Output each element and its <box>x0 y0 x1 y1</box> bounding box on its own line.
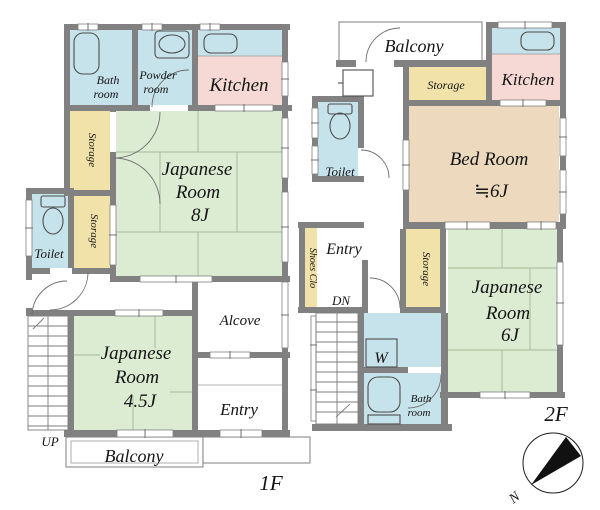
japanese-8j-label-3: 8J <box>191 205 211 226</box>
bedroom-label-1: Bed Room <box>450 149 529 170</box>
storage-top-2f-label: Storage <box>427 78 465 92</box>
bathroom-1f-label-2: room <box>94 87 119 101</box>
stairs-2f <box>316 313 358 424</box>
entry-2f-label: Entry <box>325 241 362 258</box>
shoes-closet-label: Shoes Clo <box>307 248 318 288</box>
kitchen-2f-label: Kitchen <box>501 70 555 89</box>
japanese-45j-label-1: Japanese <box>101 343 172 364</box>
japanese-8j-label-1: Japanese <box>162 159 233 180</box>
compass-north-label: N <box>506 489 524 508</box>
storage-lower-1f-label: Storage <box>88 214 100 248</box>
japanese-6j-label-2: Room <box>485 303 530 324</box>
japanese-6j-label-3: 6J <box>501 325 521 346</box>
toilet-2f-label: Toilet <box>325 164 355 179</box>
balcony-1f-label: Balcony <box>105 446 164 466</box>
floor-plan-svg: Bath room Powder room Kitchen Storage St… <box>0 0 600 510</box>
entry-porch <box>203 437 310 463</box>
toilet-1f-label: Toilet <box>34 246 64 261</box>
stairs-dn-label: DN <box>331 293 351 308</box>
balcony-2f-label: Balcony <box>385 36 444 56</box>
stairs-1f <box>28 316 68 430</box>
storage-side-2f-label: Storage <box>420 252 432 286</box>
bathroom-1f-label-1: Bath <box>97 73 120 87</box>
stairs-up-label: UP <box>41 434 58 449</box>
japanese-45j-label-2: Room <box>114 367 159 388</box>
bathroom-2f-label-2: room <box>408 407 431 419</box>
entry-1f-label: Entry <box>219 400 258 419</box>
alcove-label: Alcove <box>219 313 261 329</box>
japanese-6j-label-1: Japanese <box>472 277 543 298</box>
bedroom-label-2: ≒6J <box>474 181 509 202</box>
floor-tag-1f: 1F <box>259 471 283 495</box>
washing-machine-label: W <box>374 350 389 367</box>
storage-upper-1f-label: Storage <box>86 133 98 167</box>
floor-2f: Balcony Kitchen Storage Bed Room ≒6J Toi… <box>298 21 583 508</box>
powder-room-label-1: Powder <box>138 68 177 82</box>
floor-plan-page: Bath room Powder room Kitchen Storage St… <box>0 0 600 510</box>
compass-icon: N <box>506 433 583 508</box>
floor-tag-2f: 2F <box>544 402 568 426</box>
floor-1f: Bath room Powder room Kitchen Storage St… <box>25 23 310 495</box>
powder-room-label-2: room <box>144 82 169 96</box>
japanese-45j-label-3: 4.5J <box>124 391 158 412</box>
washbasin-icon <box>338 70 373 96</box>
japanese-8j-label-2: Room <box>175 182 220 203</box>
bathroom-2f-label-1: Bath <box>411 393 432 405</box>
balcony-1f-structure <box>66 437 310 467</box>
kitchen-1f-label: Kitchen <box>208 75 268 96</box>
